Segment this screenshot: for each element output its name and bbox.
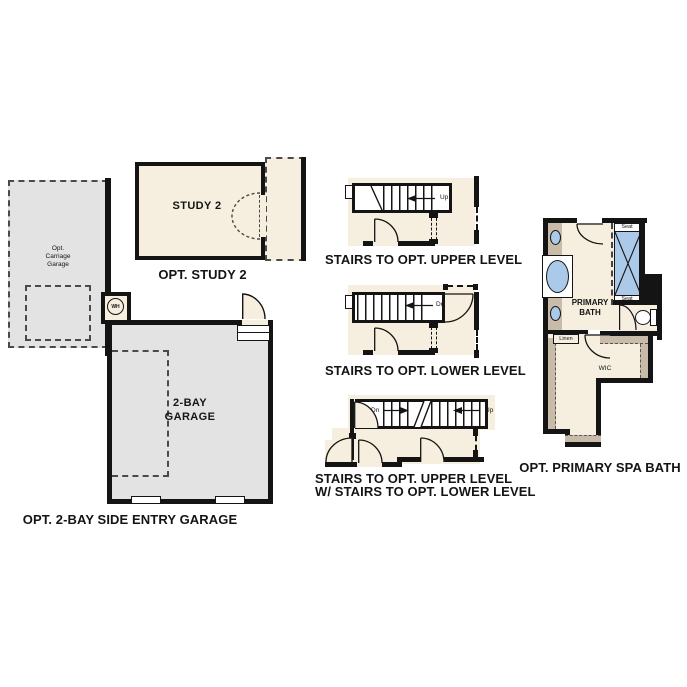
toilet-tank xyxy=(650,309,657,326)
dashed-opening xyxy=(611,223,613,305)
linen-closet: Linen xyxy=(553,334,579,344)
door-swing-icon xyxy=(242,293,265,319)
water-heater-icon: WH xyxy=(107,298,124,315)
stairs-lower-section: Dn STAIRS TO OPT. LOWER LEVEL xyxy=(343,280,503,380)
bath-caption: OPT. PRIMARY SPA BATH xyxy=(515,460,685,476)
direction-arrow-icon xyxy=(405,301,433,310)
carriage-garage-inner-outline xyxy=(25,285,91,341)
stair-winder-line xyxy=(370,186,383,210)
wall xyxy=(444,457,484,462)
door-swing-icon xyxy=(326,438,353,463)
stairs-direction-label: Dn xyxy=(436,301,444,309)
wall xyxy=(429,348,438,353)
wic-shelving xyxy=(565,435,601,442)
door-swing-icon xyxy=(619,305,636,330)
garage-caption: OPT. 2-BAY SIDE ENTRY GARAGE xyxy=(0,512,265,528)
stairs-combo-caption-line2: W/ STAIRS TO OPT. LOWER LEVEL xyxy=(315,484,500,500)
wall xyxy=(301,157,306,261)
door-swing-icon xyxy=(374,328,398,351)
stair-break-line xyxy=(414,401,431,427)
door-swing-icon xyxy=(374,219,398,242)
primary-bath-section: PRIMARY BATH Seat Seat xyxy=(540,210,687,480)
door-swing-icon xyxy=(420,438,444,462)
wall xyxy=(596,378,653,383)
dashed-opening xyxy=(436,218,437,240)
carriage-garage-label: Opt. Carriage Garage xyxy=(23,245,93,269)
stairs-up-label: Up xyxy=(485,407,493,415)
stairs-upper-caption: STAIRS TO OPT. UPPER LEVEL xyxy=(325,252,495,268)
wic-shelving xyxy=(548,338,556,429)
door-swing-icon xyxy=(354,402,378,428)
wall xyxy=(397,457,402,467)
wall xyxy=(473,284,478,290)
direction-arrow-icon xyxy=(453,406,480,415)
stair-treads xyxy=(383,402,414,426)
sink-icon xyxy=(550,230,561,245)
wall xyxy=(429,213,438,218)
wall xyxy=(474,350,479,358)
bathtub-basin xyxy=(546,260,569,293)
wall xyxy=(429,239,438,244)
dashed-opening xyxy=(475,436,477,450)
wall xyxy=(474,176,479,207)
dashed-opening xyxy=(476,207,478,230)
dashed-opening xyxy=(476,330,478,350)
garage-room-label: 2-BAY GARAGE xyxy=(135,397,245,425)
dashed-opening xyxy=(431,218,432,240)
wall xyxy=(473,450,478,462)
entry-steps xyxy=(237,325,270,341)
stairs-direction-label: Up xyxy=(440,194,448,202)
dashed-opening xyxy=(436,327,437,349)
direction-arrow-icon xyxy=(407,194,435,203)
garage-door-marker xyxy=(215,496,245,504)
wic-shelving xyxy=(600,336,648,344)
garage-door-marker xyxy=(131,496,161,504)
toilet-icon xyxy=(635,310,651,325)
door-swing-icon xyxy=(577,223,603,244)
wall xyxy=(473,428,478,436)
door-swing-icon xyxy=(445,293,473,322)
shower-icon xyxy=(614,232,640,295)
garage-section: Opt. Carriage Garage WH 2-BAY GARAGE OPT… xyxy=(5,175,285,535)
wic-shelving xyxy=(640,344,648,378)
sink-icon xyxy=(550,306,561,321)
floorplan-canvas: STUDY 2 OPT. STUDY 2 Opt. Carriage Garag… xyxy=(0,0,687,687)
wall xyxy=(429,323,438,328)
stairs-lower-caption: STAIRS TO OPT. LOWER LEVEL xyxy=(325,363,495,379)
shower-seat: Seat xyxy=(614,223,640,232)
stairs-upper-section: Up STAIRS TO OPT. UPPER LEVEL xyxy=(343,172,503,272)
wall xyxy=(474,292,479,330)
door-swing-icon xyxy=(358,440,382,463)
wall xyxy=(648,331,653,383)
stairs-combo-section: Dn Up xyxy=(325,392,510,507)
wall xyxy=(474,230,479,244)
dashed-opening xyxy=(447,285,473,287)
dashed-opening xyxy=(431,327,432,349)
wall xyxy=(443,284,448,290)
wic-label: WIC xyxy=(585,365,625,373)
